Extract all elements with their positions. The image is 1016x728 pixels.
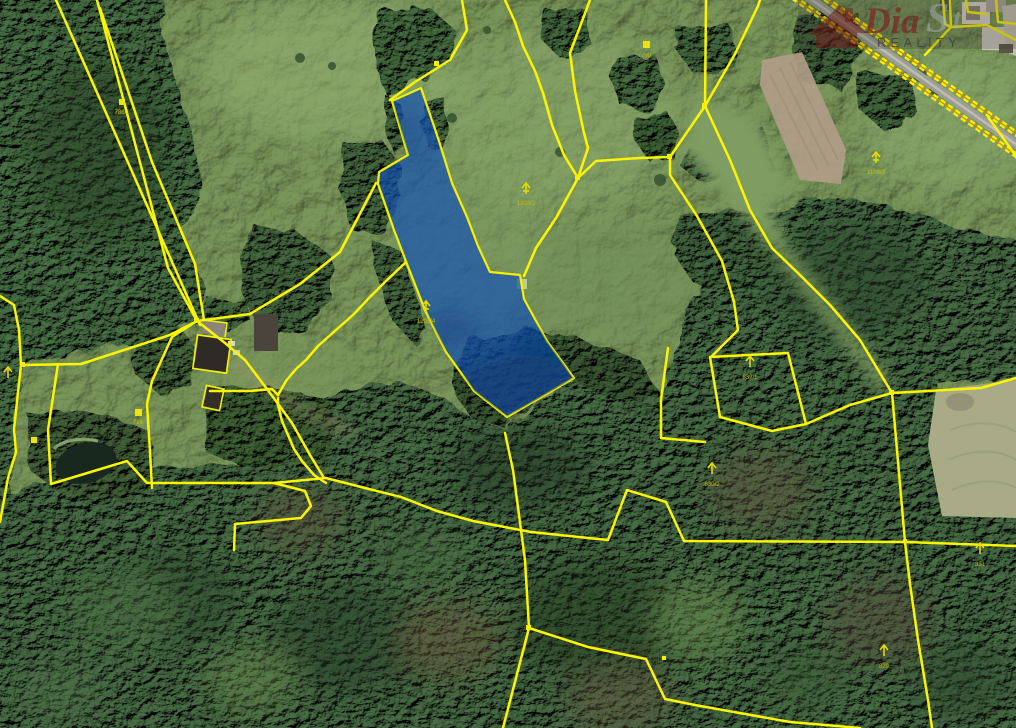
svg-text:786: 786 [133, 420, 144, 426]
svg-text:1203/2: 1203/2 [517, 201, 536, 207]
svg-text:790: 790 [641, 53, 652, 59]
svg-text:832/1: 832/1 [742, 375, 758, 381]
svg-text:1199/3: 1199/3 [867, 170, 886, 176]
svg-text:788/1: 788/1 [114, 110, 130, 116]
svg-text:829: 829 [879, 664, 890, 670]
svg-text:830/2: 830/2 [704, 482, 720, 488]
svg-text:t: t [953, 4, 962, 35]
svg-text:831: 831 [975, 562, 986, 568]
svg-text:REALITY: REALITY [877, 36, 961, 50]
svg-text:1203/4: 1203/4 [417, 319, 436, 325]
